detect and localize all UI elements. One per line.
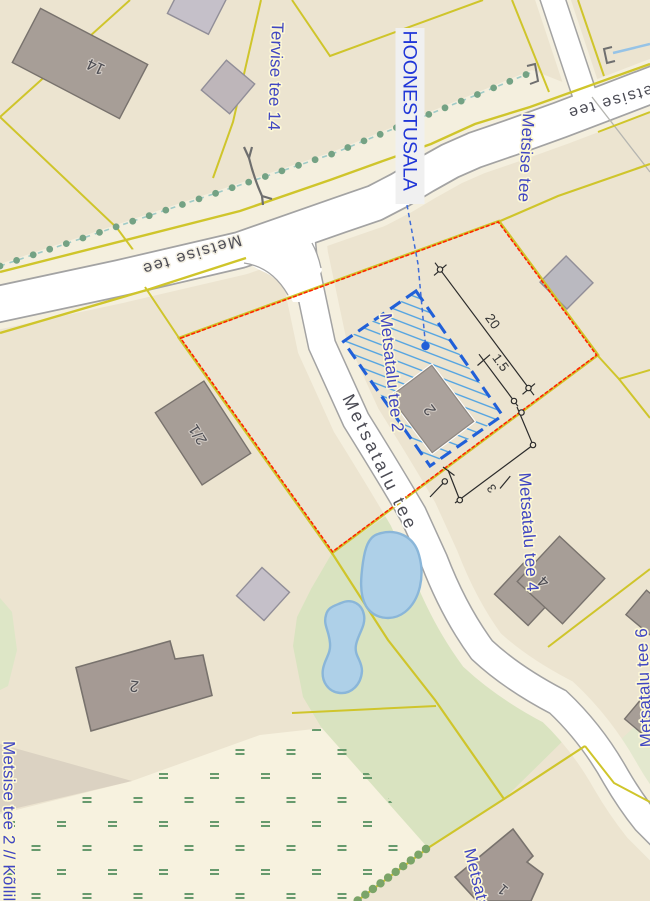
svg-text:HOONESTUSALA: HOONESTUSALA: [399, 31, 421, 191]
svg-text:Tervise tee 14: Tervise tee 14: [264, 22, 287, 131]
svg-text:Metsise tee 2 // Kõllil: Metsise tee 2 // Kõllil: [0, 741, 19, 901]
